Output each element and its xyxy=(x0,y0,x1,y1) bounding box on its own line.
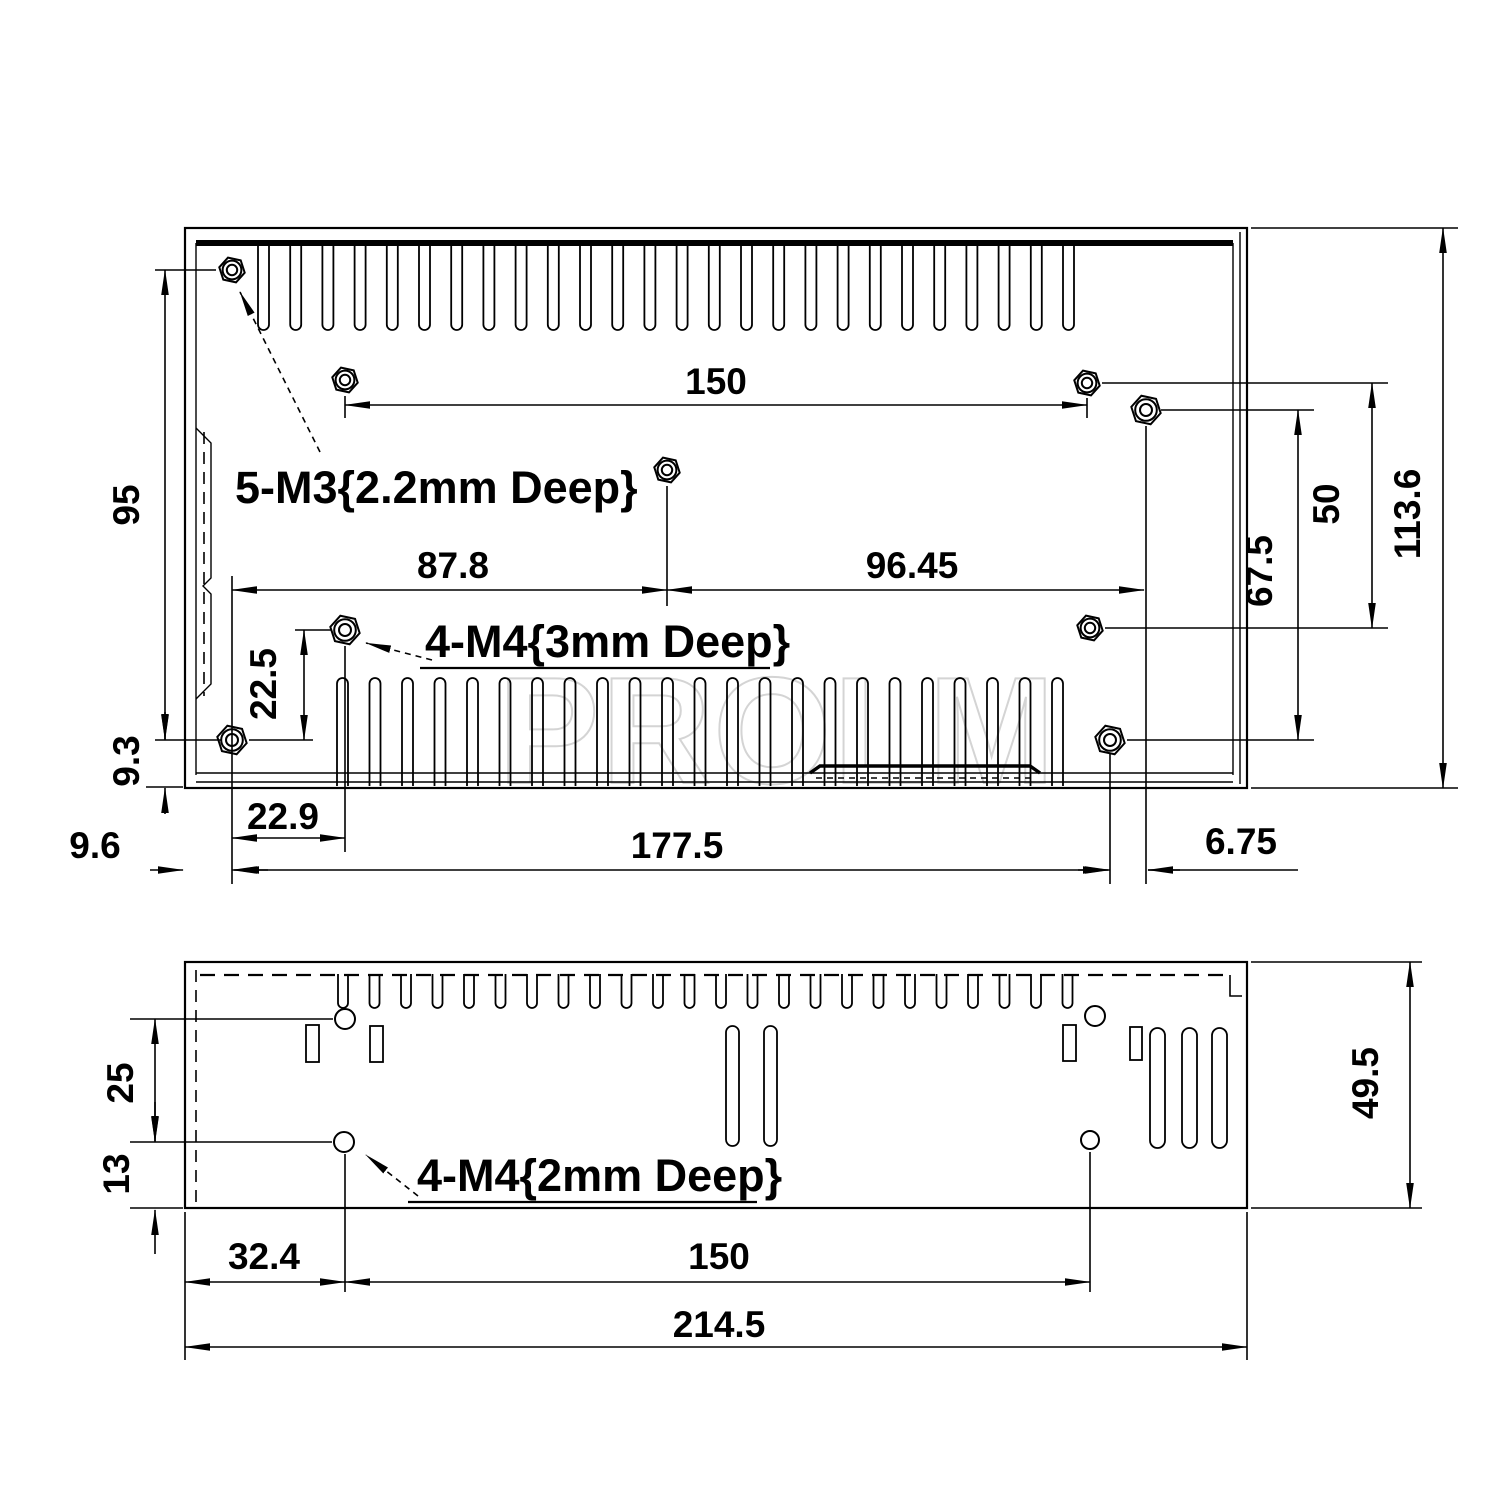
slot xyxy=(527,974,537,1008)
dim-offset-9-3: 9.3 xyxy=(106,735,147,786)
hole-circle xyxy=(1078,374,1097,393)
hole-circle xyxy=(1082,378,1092,388)
slot xyxy=(842,974,852,1008)
slot xyxy=(355,243,366,330)
technical-drawing-page: PROLM xyxy=(0,0,1500,1500)
slot xyxy=(1031,243,1042,330)
hole-circle xyxy=(1085,623,1095,633)
slot xyxy=(419,243,430,330)
slot xyxy=(741,243,752,330)
dim-height-113-6: 113.6 xyxy=(1387,469,1428,560)
hole-circle xyxy=(1104,734,1116,746)
dim-offset-25: 25 xyxy=(100,1062,141,1103)
hole-circle xyxy=(1081,1131,1099,1149)
mounting-hole xyxy=(219,258,244,283)
slot xyxy=(401,974,411,1008)
mounting-hole xyxy=(1131,396,1160,425)
slot xyxy=(467,678,478,786)
slot xyxy=(435,678,446,786)
slot xyxy=(653,974,663,1008)
slot xyxy=(496,974,506,1008)
leader-m4-top xyxy=(366,643,432,660)
hole-circle xyxy=(227,265,237,275)
slot xyxy=(966,243,977,330)
tall-slot xyxy=(1182,1028,1197,1148)
dim-offset-13: 13 xyxy=(96,1153,137,1194)
hole-circle xyxy=(340,375,350,385)
mounting-hole xyxy=(1074,371,1099,396)
slot xyxy=(370,974,380,1008)
slot xyxy=(1063,974,1073,1008)
slot xyxy=(773,243,784,330)
tall-slot xyxy=(1150,1028,1165,1148)
slot xyxy=(805,243,816,330)
slot xyxy=(999,243,1010,330)
slot xyxy=(1063,243,1074,330)
mounting-hole xyxy=(1077,616,1102,641)
dim-left-87-8: 87.8 xyxy=(417,545,489,586)
dim-height-95: 95 xyxy=(106,484,147,525)
slot xyxy=(905,974,915,1008)
small-slot xyxy=(370,1026,383,1062)
label-m3-threads: 5-M3{2.2mm Deep} xyxy=(235,462,638,513)
watermark-text: PROLM xyxy=(498,646,1057,816)
hole-circle xyxy=(334,619,356,641)
hole-circle xyxy=(336,371,355,390)
slot xyxy=(1000,974,1010,1008)
hole-circle xyxy=(1140,404,1152,416)
side-view: 25 13 32.4 150 214.5 49.5 4-M4{2mm Deep} xyxy=(96,962,1422,1360)
slot xyxy=(464,974,474,1008)
side-view-right-step xyxy=(1230,975,1242,996)
small-slot xyxy=(1063,1025,1076,1061)
dim-width-177-5: 177.5 xyxy=(631,825,724,866)
label-m4-threads-top: 4-M4{3mm Deep} xyxy=(425,616,790,667)
dim-right-96-45: 96.45 xyxy=(866,545,959,586)
slot xyxy=(811,974,821,1008)
dim-width-150-side: 150 xyxy=(688,1236,750,1277)
dim-width-214-5: 214.5 xyxy=(673,1304,766,1345)
leader-m3 xyxy=(240,292,320,452)
slot xyxy=(337,678,348,786)
mounting-hole xyxy=(1095,726,1124,755)
hole-circle xyxy=(335,1009,355,1029)
small-slot xyxy=(1130,1027,1142,1060)
slot xyxy=(433,974,443,1008)
hole-circle xyxy=(658,461,677,480)
slot xyxy=(874,974,884,1008)
slot xyxy=(338,974,348,1008)
mounting-hole xyxy=(654,458,679,483)
mounting-hole xyxy=(332,368,357,393)
slot xyxy=(1031,974,1041,1008)
slot xyxy=(370,678,381,786)
mounting-hole xyxy=(330,616,359,645)
dim-height-49-5: 49.5 xyxy=(1345,1047,1386,1119)
tall-slot xyxy=(1212,1028,1227,1148)
slot xyxy=(516,243,527,330)
dim-offset-22-5: 22.5 xyxy=(243,648,284,720)
slot xyxy=(258,243,269,330)
slot xyxy=(838,243,849,330)
dim-offset-6-75: 6.75 xyxy=(1205,821,1277,862)
drawing-canvas: PROLM xyxy=(0,0,1500,1500)
label-m4-threads-side: 4-M4{2mm Deep} xyxy=(417,1150,782,1201)
hole-circle xyxy=(223,261,242,280)
small-slot xyxy=(306,1025,319,1062)
dim-right-50: 50 xyxy=(1306,483,1347,524)
tall-slot xyxy=(726,1026,739,1146)
slot xyxy=(902,243,913,330)
dim-offset-9-6: 9.6 xyxy=(69,825,120,866)
side-view-mounting-holes xyxy=(334,1006,1105,1152)
slot xyxy=(402,678,413,786)
dim-width-150: 150 xyxy=(685,361,747,402)
hole-circle xyxy=(1081,619,1100,638)
side-cutout-slots xyxy=(306,1025,1227,1148)
slot xyxy=(387,243,398,330)
slot xyxy=(580,243,591,330)
slot xyxy=(870,243,881,330)
slot xyxy=(559,974,569,1008)
slot xyxy=(716,974,726,1008)
slot xyxy=(937,974,947,1008)
tall-slot xyxy=(764,1026,777,1146)
hole-circle xyxy=(1135,399,1157,421)
hole-circle xyxy=(1099,729,1121,751)
hole-circle xyxy=(334,1132,354,1152)
slot xyxy=(779,974,789,1008)
dim-offset-32-4: 32.4 xyxy=(228,1236,300,1277)
slot xyxy=(548,243,559,330)
slot xyxy=(290,243,301,330)
slot xyxy=(934,243,945,330)
slot xyxy=(685,974,695,1008)
slot xyxy=(968,974,978,1008)
hole-circle xyxy=(1085,1006,1105,1026)
dim-offset-22-9: 22.9 xyxy=(247,796,319,837)
hole-circle xyxy=(662,465,672,475)
slot xyxy=(677,243,688,330)
slot xyxy=(622,974,632,1008)
slot xyxy=(612,243,623,330)
slot xyxy=(483,243,494,330)
leader-m4-side xyxy=(366,1155,418,1196)
dim-right-67-5: 67.5 xyxy=(1239,535,1280,607)
top-vent-slots xyxy=(258,243,1074,330)
slot xyxy=(748,974,758,1008)
slot xyxy=(644,243,655,330)
slot xyxy=(451,243,462,330)
slot xyxy=(590,974,600,1008)
slot xyxy=(322,243,333,330)
hole-circle xyxy=(339,624,351,636)
slot xyxy=(709,243,720,330)
side-vent-slots xyxy=(338,974,1073,1008)
